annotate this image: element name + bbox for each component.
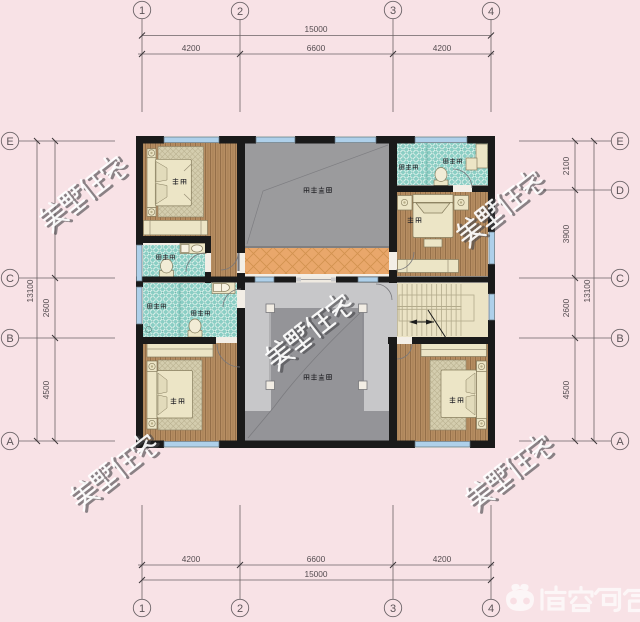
svg-text:2100: 2100: [561, 156, 571, 175]
svg-text:6600: 6600: [307, 554, 326, 564]
svg-text:4500: 4500: [41, 380, 51, 399]
svg-text:13100: 13100: [25, 279, 35, 302]
svg-text:A: A: [616, 436, 624, 448]
svg-text:B: B: [616, 333, 623, 345]
svg-text:4500: 4500: [561, 380, 571, 399]
svg-text:6600: 6600: [307, 43, 326, 53]
svg-text:4200: 4200: [433, 43, 452, 53]
svg-text:C: C: [6, 273, 14, 285]
svg-text:E: E: [6, 136, 13, 148]
svg-text:1: 1: [139, 5, 145, 17]
svg-text:2: 2: [237, 6, 243, 18]
svg-text:E: E: [616, 136, 623, 148]
svg-text:4200: 4200: [182, 554, 201, 564]
svg-text:15000: 15000: [304, 24, 327, 34]
svg-text:2: 2: [237, 603, 243, 615]
svg-text:3900: 3900: [561, 224, 571, 243]
svg-text:13100: 13100: [582, 279, 592, 302]
svg-text:2600: 2600: [561, 298, 571, 317]
svg-text:4200: 4200: [182, 43, 201, 53]
svg-text:15000: 15000: [304, 569, 327, 579]
svg-text:3: 3: [390, 5, 396, 17]
svg-text:1: 1: [139, 603, 145, 615]
svg-text:4: 4: [488, 6, 494, 18]
svg-text:D: D: [616, 185, 624, 197]
svg-text:C: C: [616, 273, 624, 285]
svg-text:2600: 2600: [41, 298, 51, 317]
svg-text:3: 3: [390, 603, 396, 615]
svg-text:4200: 4200: [433, 554, 452, 564]
svg-text:B: B: [6, 333, 13, 345]
svg-text:4: 4: [488, 603, 494, 615]
svg-text:A: A: [6, 436, 14, 448]
